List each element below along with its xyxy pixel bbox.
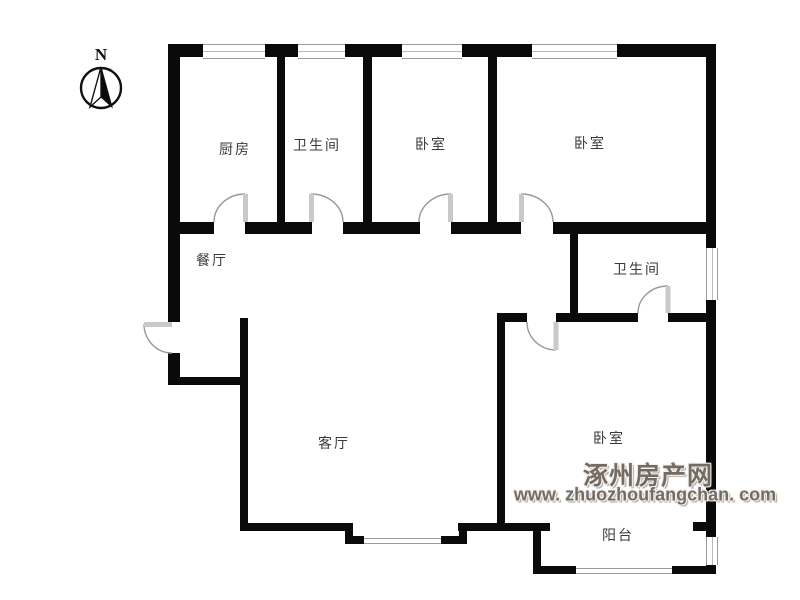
room-label-bathroom-right: 卫生间 [613,259,661,279]
compass: N [79,46,123,116]
bathroom-right-door [638,286,668,313]
bathroom-top-door-arc [311,194,343,222]
north-arrow-icon [79,63,123,111]
compass-north-label: N [79,46,123,63]
entry-door [144,324,172,353]
kitchen-door-arc [214,194,245,222]
watermark-site-url: www. zhuozhoufangchan. com [514,485,776,506]
bathroom-right-door-arc [638,286,668,313]
room-label-living-room: 客厅 [318,433,350,453]
entry-door-arc [144,324,172,353]
bathroom-top-door [311,194,343,222]
bedroom2-door-arc [521,194,553,222]
room-label-bedroom-top-1: 卧室 [415,134,447,154]
floor-plan: 厨房 卫生间 卧室 卧室 餐厅 卫生间 客厅 卧室 阳台 N 涿州房产网 www… [0,0,800,600]
bedroom-bottom-door-arc [527,322,556,350]
bedroom-bottom-door [527,322,556,350]
room-label-balcony: 阳台 [602,525,634,545]
bedroom1-door [419,194,451,222]
bedroom1-door-arc [419,194,451,222]
room-label-kitchen: 厨房 [219,139,251,159]
kitchen-door [214,194,246,222]
room-label-bedroom-bottom: 卧室 [593,428,625,448]
room-label-bedroom-top-2: 卧室 [574,133,606,153]
room-label-dining-room: 餐厅 [196,250,228,270]
room-label-bathroom-top: 卫生间 [293,135,341,155]
bedroom2-door [521,194,553,222]
